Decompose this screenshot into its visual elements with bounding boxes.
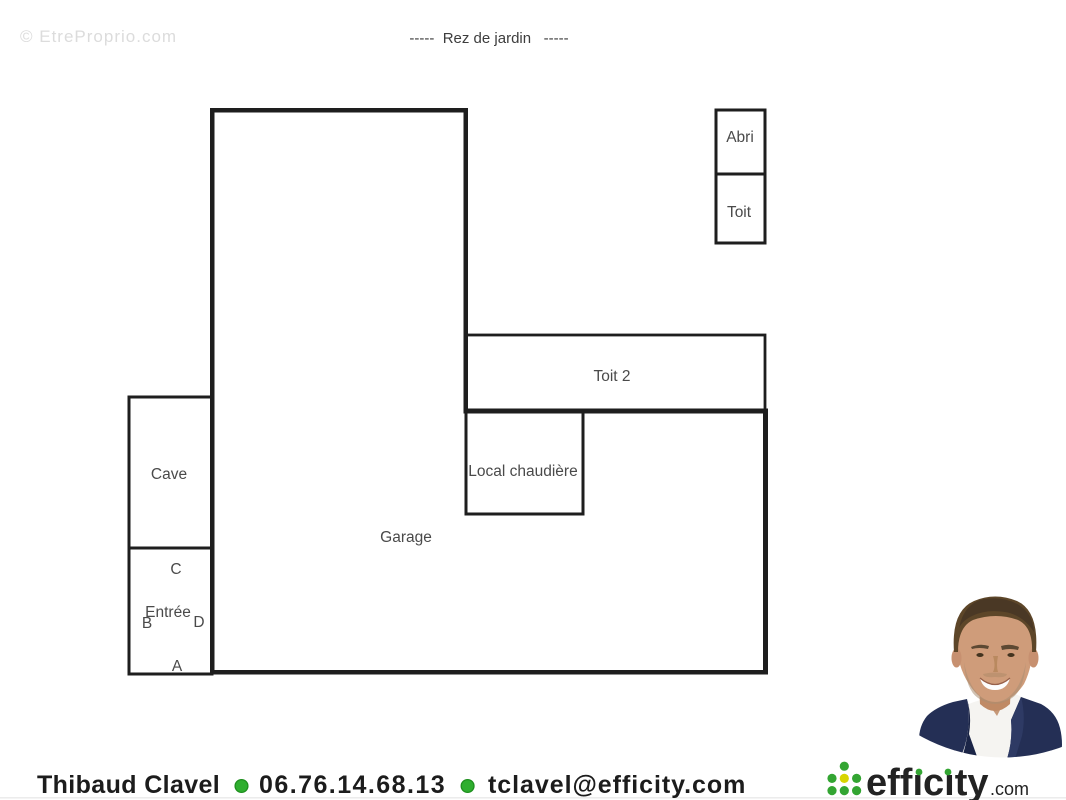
svg-text:C: C [170,561,181,578]
svg-text:Garage: Garage [380,529,432,546]
svg-text:.com: .com [990,779,1029,799]
svg-text:effıcıty: effıcıty [866,762,988,800]
svg-text:A: A [172,658,183,675]
svg-text:Cave: Cave [151,466,187,483]
svg-text:Local chaudière: Local chaudière [468,463,577,480]
svg-text:D: D [193,614,204,631]
svg-text:tclavel@efficity.com: tclavel@efficity.com [488,771,746,799]
svg-text:Toit: Toit [727,204,752,221]
svg-text:Abri: Abri [726,129,754,146]
svg-text:Thibaud Clavel: Thibaud Clavel [37,771,220,799]
svg-text:----- Rez de jardin -----: ----- Rez de jardin ----- [409,30,568,47]
svg-text:06.76.14.68.13: 06.76.14.68.13 [259,771,446,799]
svg-text:Toit 2: Toit 2 [593,368,630,385]
svg-text:B: B [142,615,152,632]
svg-text:© EtreProprio.com: © EtreProprio.com [20,27,177,46]
